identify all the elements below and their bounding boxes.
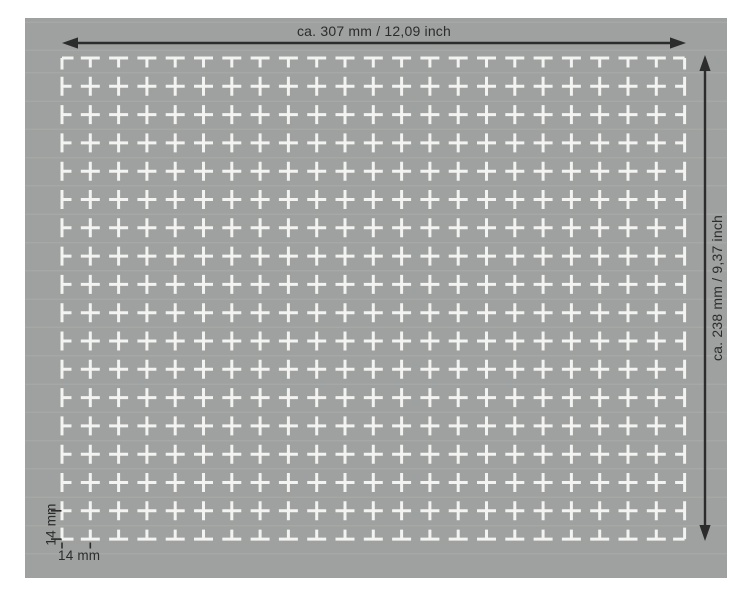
height-arrow-head-top bbox=[699, 55, 710, 71]
width-dimension-arrow bbox=[62, 37, 686, 48]
diagram-graphics bbox=[25, 18, 727, 578]
column-pitch-label: 14 mm bbox=[58, 548, 100, 564]
height-arrow-head-bottom bbox=[699, 525, 710, 541]
width-dimension-label: ca. 307 mm / 12,09 inch bbox=[62, 23, 686, 39]
page: { "diagram": { "dimensions": { "width_la… bbox=[0, 0, 750, 600]
width-arrow-head-right bbox=[670, 37, 686, 48]
height-dimension-label: ca. 238 mm / 9,37 inch bbox=[709, 203, 725, 373]
row-pitch-label: 14 mm bbox=[44, 502, 59, 548]
width-arrow-head-left bbox=[62, 37, 78, 48]
mat-panel: ca. 307 mm / 12,09 inch ca. 238 mm / 9,3… bbox=[25, 18, 727, 578]
registration-cross-grid bbox=[62, 58, 685, 539]
